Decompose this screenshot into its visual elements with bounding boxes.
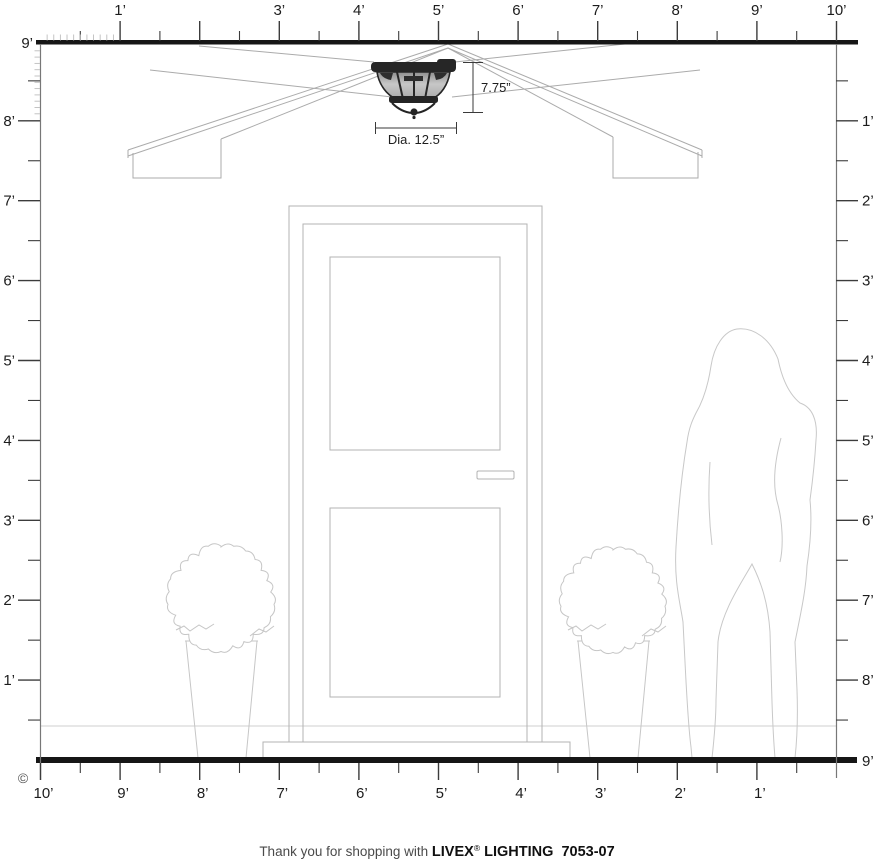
left-ruler: 9’8’7’6’5’4’3’2’1’: [3, 35, 40, 720]
right-ruler-label: 5’: [862, 432, 874, 449]
height-dimension-label: 7.75”: [481, 80, 511, 95]
left-ruler-label: 7’: [3, 193, 15, 210]
top-ruler-label: 7’: [592, 2, 604, 19]
flush-mount-light-fixture: [371, 59, 456, 119]
door-handle: [477, 471, 514, 479]
door-threshold-step: [263, 742, 570, 758]
left-ruler-label: 4’: [3, 432, 15, 449]
ground-bar: [36, 757, 857, 763]
planter-pot-right: [577, 641, 650, 758]
eave-return-left: [133, 139, 221, 178]
bottom-ruler: 10’9’8’7’6’5’4’3’2’1’: [33, 763, 796, 802]
porch-elevation-drawing: [40, 44, 836, 758]
left-ruler-label: 5’: [3, 353, 15, 370]
bottom-ruler-label: 2’: [674, 785, 686, 802]
bottom-ruler-label: 4’: [515, 785, 527, 802]
woman-silhouette: [676, 329, 817, 758]
diameter-dimension-label: Dia. 12.5”: [388, 132, 444, 147]
bottom-ruler-label: 3’: [595, 785, 607, 802]
top-ruler-label: 5’: [433, 2, 445, 19]
right-ruler-label: 4’: [862, 353, 874, 370]
door-lower-panel: [330, 508, 500, 697]
top-ruler-bar: [36, 40, 858, 45]
topiary-ball-right: [559, 547, 666, 654]
right-ruler-label: 3’: [862, 273, 874, 290]
fixture-bottom-band: [389, 96, 438, 103]
front-door: [263, 206, 570, 758]
right-ruler-label: 2’: [862, 193, 874, 210]
right-ruler: 1’2’3’4’5’6’7’8’9’: [836, 81, 874, 770]
scale-diagram-page: 7.75” Dia. 12.5” 1’3’4’5’6’7’8’9’10’ 9’8…: [0, 0, 875, 867]
roof-rake-right: [448, 44, 702, 158]
right-ruler-label: 1’: [862, 113, 874, 130]
bottom-ruler-label: 1’: [754, 785, 766, 802]
right-ruler-label: 6’: [862, 512, 874, 529]
footer-brand: LIVEX: [432, 844, 474, 860]
left-ruler-label: 1’: [3, 672, 15, 689]
topiary-ball-left: [166, 544, 275, 653]
bottom-ruler-label: 10’: [33, 785, 53, 802]
footer-prefix: Thank you for shopping with: [259, 844, 432, 859]
left-ruler-top-label: 9’: [21, 35, 33, 52]
door-outer-frame: [289, 206, 542, 742]
fixture-finial-ball: [410, 108, 417, 115]
top-ruler: 1’3’4’5’6’7’8’9’10’: [47, 2, 846, 41]
footer-text: Thank you for shopping with LIVEX® LIGHT…: [259, 843, 614, 860]
right-ruler-bottom-label: 9’: [862, 753, 874, 770]
top-ruler-label: 10’: [826, 2, 846, 19]
bottom-ruler-label: 9’: [117, 785, 129, 802]
right-ruler-label: 8’: [862, 672, 874, 689]
bottom-ruler-label: 6’: [356, 785, 368, 802]
left-ruler-label: 8’: [3, 113, 15, 130]
left-ruler-label: 6’: [3, 273, 15, 290]
door-slab: [303, 224, 527, 742]
bottom-ruler-label: 5’: [436, 785, 448, 802]
door-upper-panel: [330, 257, 500, 450]
bottom-ruler-label: 8’: [197, 785, 209, 802]
copyright-mark: ©: [18, 770, 29, 786]
scale-diagram: 7.75” Dia. 12.5” 1’3’4’5’6’7’8’9’10’ 9’8…: [0, 0, 875, 867]
fixture-finial-tip: [412, 116, 415, 119]
top-ruler-label: 8’: [671, 2, 683, 19]
left-ruler-label: 3’: [3, 512, 15, 529]
top-ruler-label: 3’: [273, 2, 285, 19]
bottom-ruler-label: 7’: [276, 785, 288, 802]
top-ruler-label: 1’: [114, 2, 126, 19]
planter-pot-left: [185, 641, 258, 758]
fixture-canopy: [371, 62, 456, 72]
top-ruler-label: 9’: [751, 2, 763, 19]
footer-model: LIGHTING 7053-07: [480, 844, 615, 860]
left-ruler-label: 2’: [3, 592, 15, 609]
height-dimension-line: [463, 63, 483, 113]
top-ruler-label: 4’: [353, 2, 365, 19]
top-ruler-label: 6’: [512, 2, 524, 19]
right-ruler-label: 7’: [862, 592, 874, 609]
